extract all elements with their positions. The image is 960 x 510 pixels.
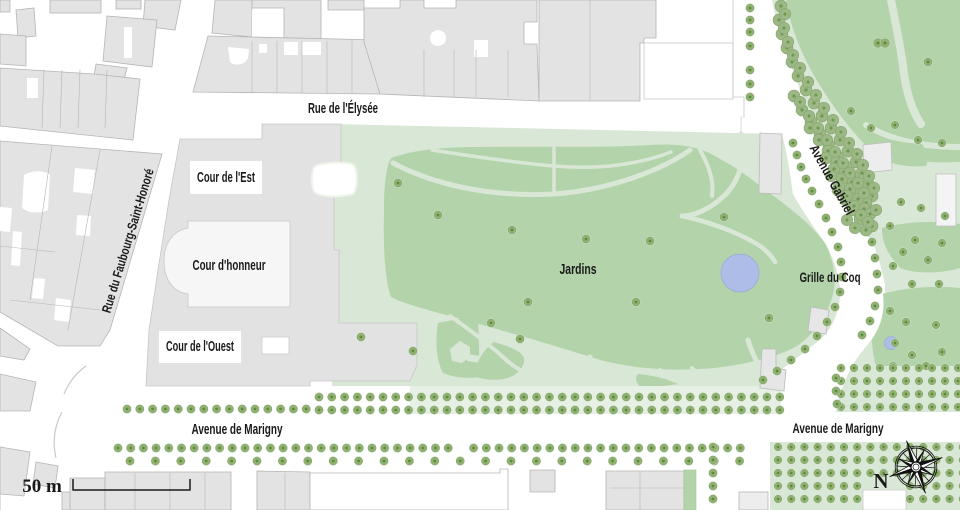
svg-text:50 m: 50 m	[22, 476, 62, 497]
svg-text:Cour de l'Ouest: Cour de l'Ouest	[166, 339, 234, 355]
svg-text:Avenue de Marigny: Avenue de Marigny	[793, 420, 884, 436]
svg-text:Avenue de Marigny: Avenue de Marigny	[192, 421, 283, 438]
svg-text:Rue de l'Élysée: Rue de l'Élysée	[308, 100, 378, 117]
svg-text:Cour de l'Est: Cour de l'Est	[197, 170, 255, 186]
svg-text:Jardins: Jardins	[560, 261, 597, 278]
svg-text:Grille du Coq: Grille du Coq	[800, 269, 861, 285]
svg-text:Cour d'honneur: Cour d'honneur	[193, 258, 266, 274]
svg-text:N: N	[873, 469, 888, 493]
